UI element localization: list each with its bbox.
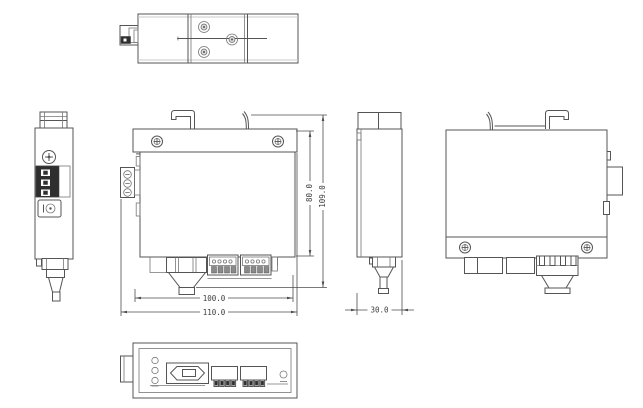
screw-icon [152, 136, 163, 147]
rear-body [446, 130, 607, 237]
terminal-connector-1 [208, 255, 239, 275]
din-rail-hook-icon [172, 111, 195, 130]
top-view [120, 14, 298, 63]
din-rail-cap [40, 112, 67, 128]
front-body [140, 152, 295, 257]
dimension-100: 100.0 [135, 275, 293, 303]
din-rail-latch-icon [243, 112, 249, 130]
terminal-block-top [120, 26, 138, 46]
din-rail-hook-icon [546, 111, 569, 130]
fiber-connector-side [370, 257, 396, 294]
terminal-block-bottom [121, 356, 134, 382]
din-rail-latch-icon [487, 112, 493, 130]
dim-label-110: 110.0 [203, 308, 226, 317]
dim-label-109: 109.0 [318, 185, 327, 208]
orthographic-views-drawing: 80.0 109.0 100.0 110.0 [0, 0, 643, 408]
rear-bottom-connectors [465, 256, 579, 294]
side-view: 30.0 [345, 113, 414, 316]
bottom-view [121, 343, 298, 398]
dim-label-80: 80.0 [305, 183, 314, 202]
power-terminal-block-front [121, 168, 141, 198]
technical-drawing-page: 80.0 109.0 100.0 110.0 [0, 0, 643, 408]
left-view [35, 112, 73, 301]
terminal-port-1 [212, 367, 238, 387]
dim-label-100: 100.0 [203, 294, 226, 303]
screw-icon [273, 136, 284, 147]
dimension-80: 80.0 [296, 131, 314, 256]
screw-icon [582, 242, 593, 253]
terminal-connector-2 [241, 255, 272, 275]
terminal-block-rear [607, 167, 623, 195]
screw-icon [460, 242, 471, 253]
front-view [121, 111, 298, 295]
rear-view [446, 111, 623, 294]
fiber-connector-rear [537, 256, 579, 294]
fiber-connector-side [37, 259, 69, 302]
din-rail-cap [358, 113, 401, 130]
dim-label-30: 30.0 [370, 306, 389, 315]
fiber-connector-front [167, 258, 207, 295]
side-body [357, 129, 402, 257]
